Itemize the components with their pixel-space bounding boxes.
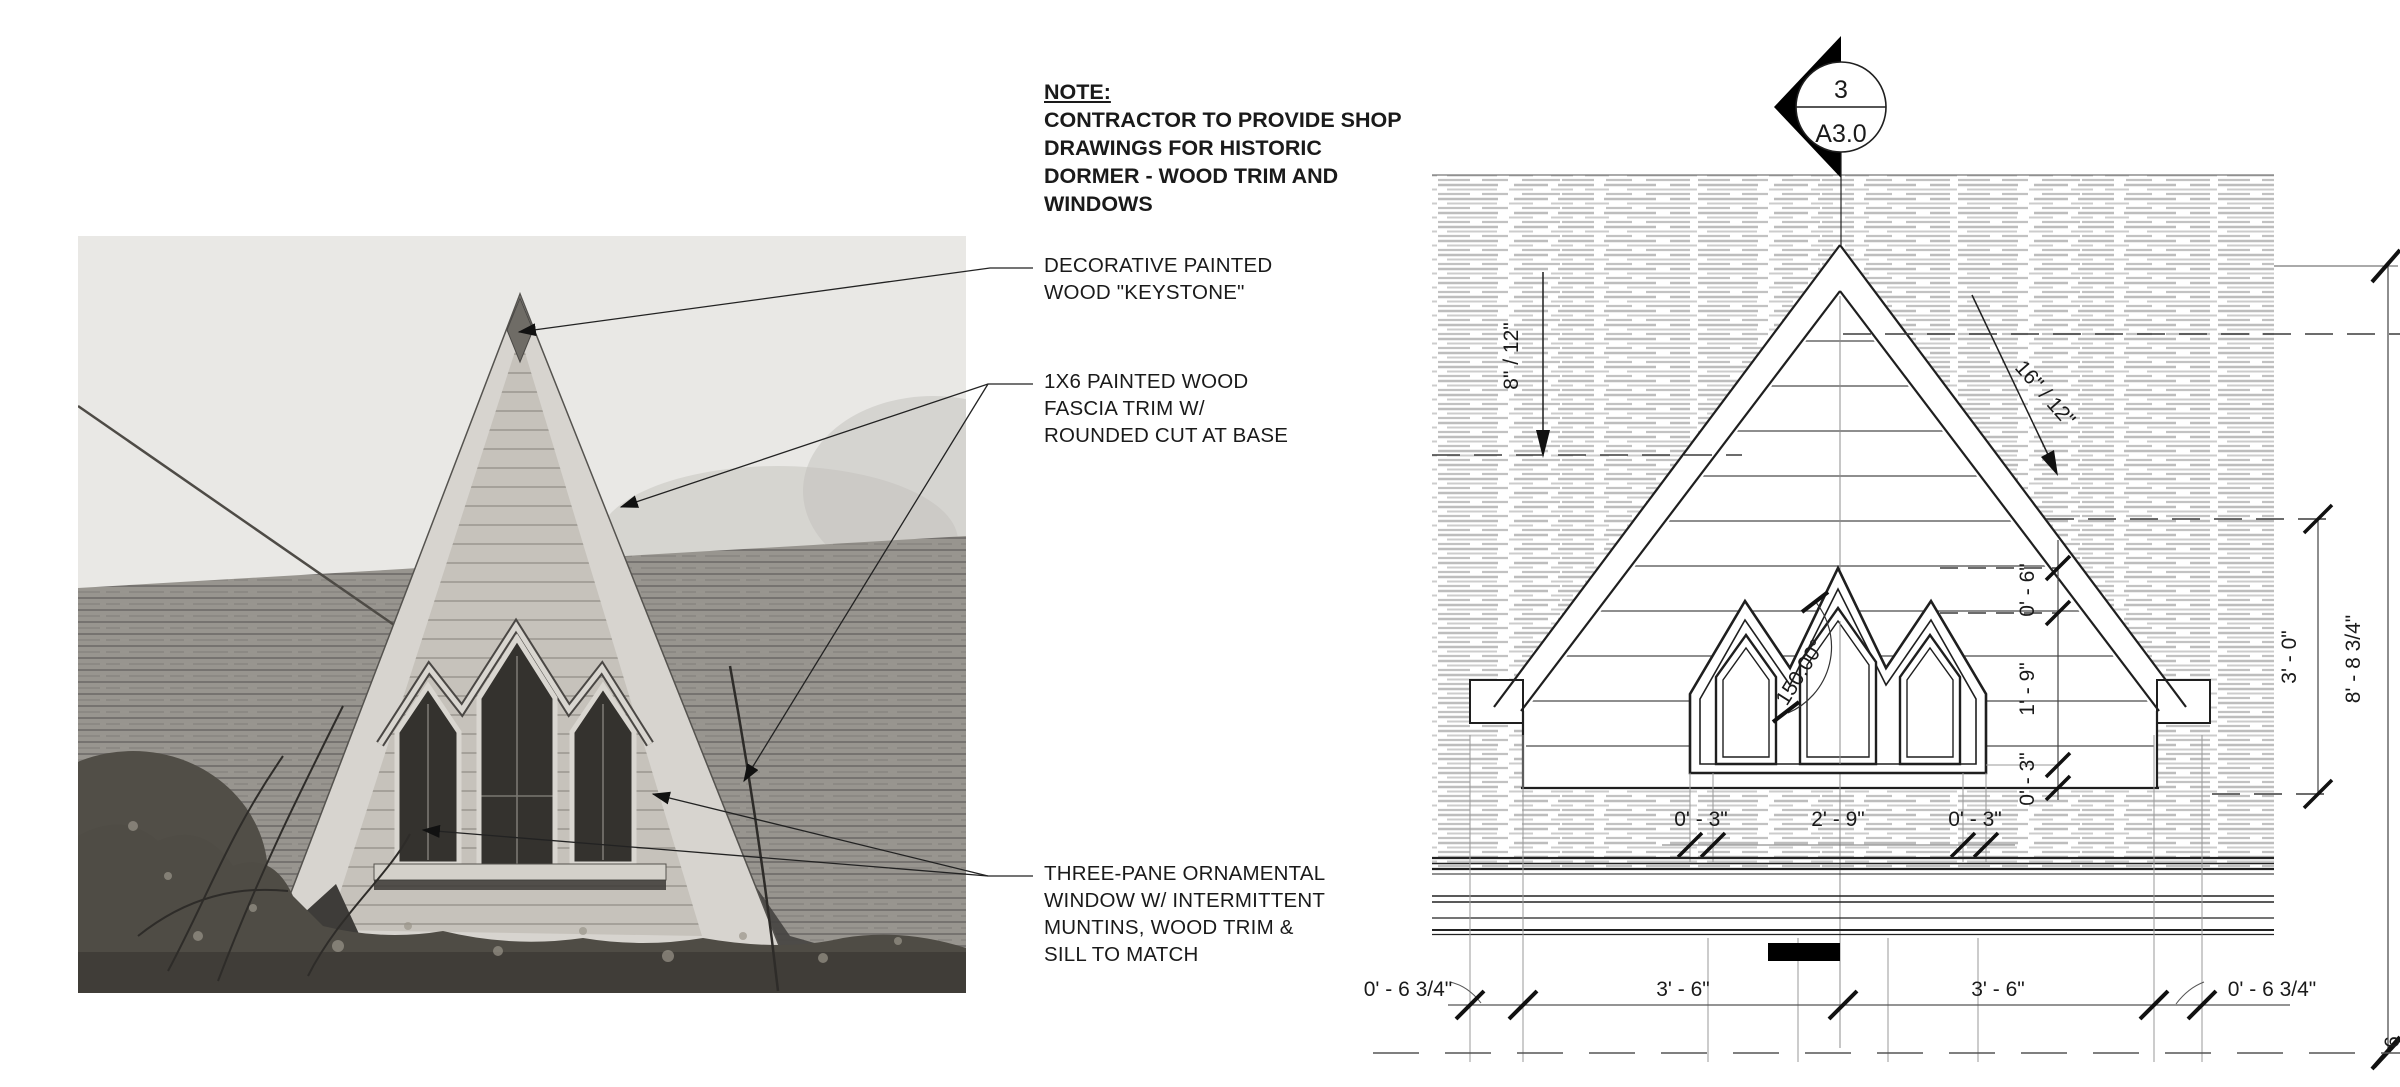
callout-line: ROUNDED CUT AT BASE <box>1044 422 1288 449</box>
callout-line: FASCIA TRIM W/ <box>1044 395 1288 422</box>
detail-number: 3 <box>1834 76 1848 104</box>
note-line: DORMER - WOOD TRIM AND <box>1044 162 1402 190</box>
note-line: WINDOWS <box>1044 190 1402 218</box>
dim-half-left: 3' - 6" <box>1656 978 1709 1001</box>
sheet-number: A3.0 <box>1815 120 1866 148</box>
dim-half-right: 3' - 6" <box>1971 978 2024 1001</box>
dim-window-width: 2' - 9" <box>1811 808 1864 831</box>
callout-line: MUNTINS, WOOD TRIM & <box>1044 914 1325 941</box>
trim-bands <box>1432 858 2274 935</box>
callout-line: DECORATIVE PAINTED <box>1044 252 1272 279</box>
pitch-left-text: 8" / 12" <box>1500 322 1523 389</box>
shop-drawings-note: NOTE: CONTRACTOR TO PROVIDE SHOP DRAWING… <box>1044 78 1402 218</box>
callout-line: WINDOW W/ INTERMITTENT <box>1044 887 1325 914</box>
dim-jamb-left: 0' - 3" <box>1674 808 1727 831</box>
dim-window-height: 1' - 9" <box>2016 662 2039 715</box>
dim-8-8-3-4: 8' - 8 3/4" <box>2342 615 2365 704</box>
note-title: NOTE: <box>1044 78 1402 106</box>
fascia-foot-right <box>2157 680 2210 723</box>
callout-fascia: 1X6 PAINTED WOOD FASCIA TRIM W/ ROUNDED … <box>1044 368 1288 449</box>
dim-overhang-left: 0' - 6 3/4" <box>1364 978 1453 1001</box>
leader-fascia-2 <box>744 384 988 781</box>
leader-window-2 <box>653 794 988 876</box>
leader-fascia-1 <box>621 384 1033 507</box>
callout-keystone: DECORATIVE PAINTED WOOD "KEYSTONE" <box>1044 252 1272 306</box>
leader-keystone <box>519 268 1033 332</box>
edge-partial-dim: 6 <box>2381 1036 2400 1048</box>
callout-line: SILL TO MATCH <box>1044 941 1325 968</box>
dim-sill-height: 0' - 3" <box>2016 752 2039 805</box>
note-line: DRAWINGS FOR HISTORIC <box>1044 134 1402 162</box>
leader-lines <box>423 268 1033 876</box>
dim-overhang-right: 0' - 6 3/4" <box>2228 978 2317 1001</box>
sheet-canvas: 150.00° 8" / 12" 16" / 12" 3 A3.0 <box>0 0 2400 1087</box>
right-dimension-3-0: 3' - 0" <box>2278 505 2332 808</box>
callout-window: THREE-PANE ORNAMENTAL WINDOW W/ INTERMIT… <box>1044 860 1325 968</box>
note-line: CONTRACTOR TO PROVIDE SHOP <box>1044 106 1402 134</box>
dim-jamb-right: 0' - 3" <box>1948 808 2001 831</box>
dim-3-0: 3' - 0" <box>2278 630 2301 683</box>
dim-head-height: 0' - 6" <box>2016 563 2039 616</box>
callout-line: THREE-PANE ORNAMENTAL <box>1044 860 1325 887</box>
callout-line: 1X6 PAINTED WOOD <box>1044 368 1288 395</box>
wall-section-marker <box>1768 943 1840 961</box>
leader-window-1 <box>423 830 1033 876</box>
fascia-foot-left <box>1470 680 1523 723</box>
callout-line: WOOD "KEYSTONE" <box>1044 279 1272 306</box>
